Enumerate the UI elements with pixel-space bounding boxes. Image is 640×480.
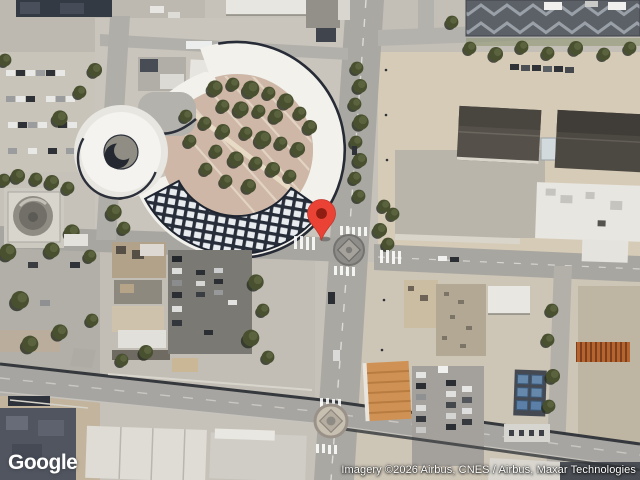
map-viewport[interactable]: Google Imagery ©2026 Airbus, CNES / Airb… bbox=[0, 0, 640, 480]
pin-dot bbox=[316, 208, 327, 219]
google-logo[interactable]: Google bbox=[8, 451, 77, 475]
imagery-attribution: Imagery ©2026 Airbus, CNES / Airbus, Max… bbox=[341, 464, 636, 476]
traffic-circle-south bbox=[315, 405, 347, 437]
satellite-imagery[interactable] bbox=[0, 0, 640, 480]
traffic-circle-main bbox=[334, 235, 364, 265]
